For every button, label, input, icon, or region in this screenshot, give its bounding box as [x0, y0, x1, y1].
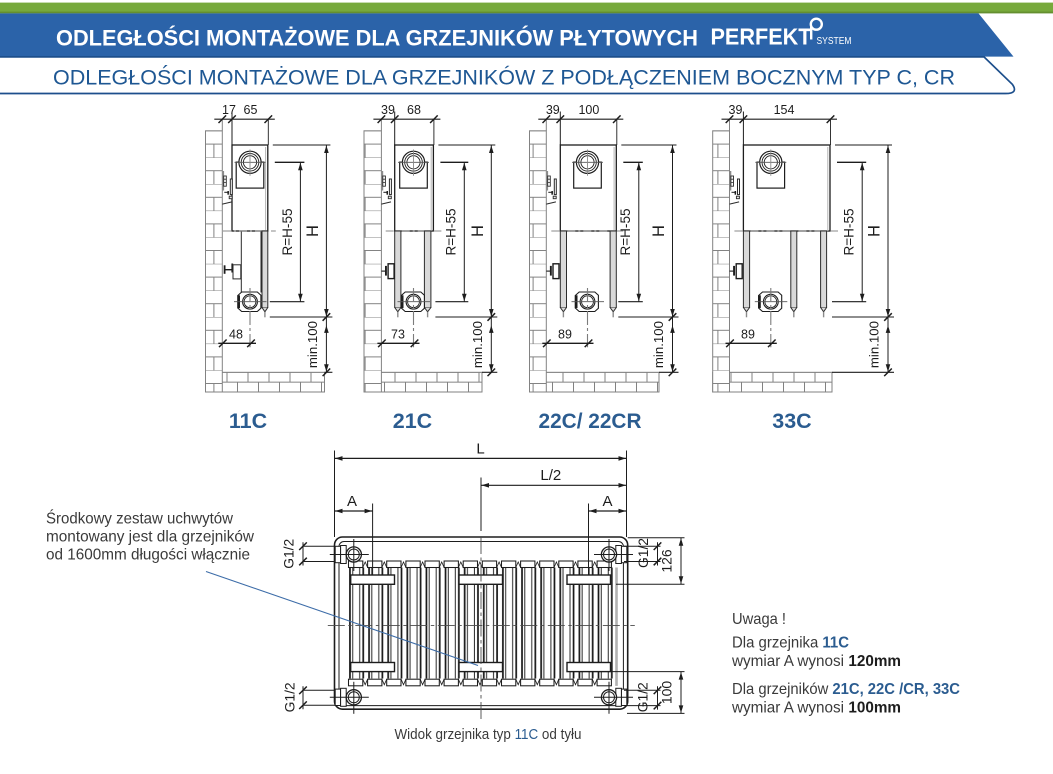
svg-text:Środkowy zestaw uchwytów: Środkowy zestaw uchwytów: [46, 508, 234, 527]
svg-text:A: A: [602, 493, 612, 510]
svg-text:A: A: [347, 493, 357, 510]
svg-text:G1/2: G1/2: [636, 682, 651, 712]
svg-text:G1/2: G1/2: [283, 682, 298, 712]
svg-text:PERFEKT: PERFEKT: [711, 23, 812, 49]
svg-text:min.100: min.100: [305, 321, 320, 368]
svg-text:L: L: [476, 440, 484, 457]
svg-text:39: 39: [729, 103, 743, 117]
svg-text:wymiar A wynosi 120mm: wymiar A wynosi 120mm: [731, 653, 901, 670]
svg-text:R=H-55: R=H-55: [618, 209, 633, 256]
svg-text:68: 68: [407, 103, 421, 117]
svg-text:33C: 33C: [772, 409, 811, 433]
svg-text:22C/ 22CR: 22C/ 22CR: [539, 409, 642, 433]
svg-text:G1/2: G1/2: [282, 539, 297, 569]
svg-text:L/2: L/2: [540, 467, 561, 484]
svg-text:89: 89: [558, 327, 572, 341]
svg-text:min.100: min.100: [651, 321, 666, 368]
svg-text:65: 65: [244, 103, 258, 117]
svg-text:Uwaga !: Uwaga !: [732, 611, 786, 628]
svg-text:wymiar A wynosi 100mm: wymiar A wynosi 100mm: [731, 700, 901, 717]
svg-text:H: H: [304, 225, 322, 237]
svg-text:R=H-55: R=H-55: [280, 209, 295, 256]
svg-text:min.100: min.100: [867, 321, 882, 368]
svg-text:Widok grzejnika typ 11C od tył: Widok grzejnika typ 11C od tyłu: [395, 727, 582, 743]
svg-text:montowany jest dla grzejników: montowany jest dla grzejników: [46, 529, 255, 546]
svg-text:39: 39: [381, 103, 395, 117]
svg-text:ODLEGŁOŚCI MONTAŻOWE DLA GRZEJ: ODLEGŁOŚCI MONTAŻOWE DLA GRZEJNIKÓW Z PO…: [53, 64, 955, 89]
svg-text:ODLEGŁOŚCI MONTAŻOWE DLA GR: ODLEGŁOŚCI MONTAŻOWE DLA GRZEJNIKÓW PŁYT…: [56, 25, 698, 50]
svg-text:73: 73: [391, 327, 405, 341]
svg-text:H: H: [469, 225, 487, 237]
svg-text:od 1600mm długości włącznie: od 1600mm długości włącznie: [46, 547, 250, 564]
svg-text:39: 39: [546, 103, 560, 117]
svg-text:21C: 21C: [393, 409, 432, 433]
svg-text:100: 100: [659, 681, 675, 705]
svg-text:17: 17: [222, 103, 236, 117]
svg-text:R=H-55: R=H-55: [444, 209, 459, 256]
svg-text:48: 48: [229, 327, 243, 341]
svg-text:H: H: [866, 225, 884, 237]
svg-text:126: 126: [659, 549, 675, 573]
svg-text:154: 154: [774, 103, 795, 117]
svg-text:min.100: min.100: [470, 321, 485, 368]
svg-text:11C: 11C: [229, 409, 267, 433]
svg-text:Dla grzejników 21C, 22C /CR, 3: Dla grzejników 21C, 22C /CR, 33C: [732, 681, 960, 698]
svg-text:G1/2: G1/2: [636, 538, 651, 568]
svg-text:100: 100: [578, 103, 599, 117]
svg-text:89: 89: [741, 327, 755, 341]
svg-text:SYSTEM: SYSTEM: [817, 36, 852, 47]
svg-text:Dla grzejnika 11C: Dla grzejnika 11C: [732, 634, 849, 651]
svg-text:R=H-55: R=H-55: [842, 209, 857, 256]
svg-text:H: H: [650, 225, 668, 237]
